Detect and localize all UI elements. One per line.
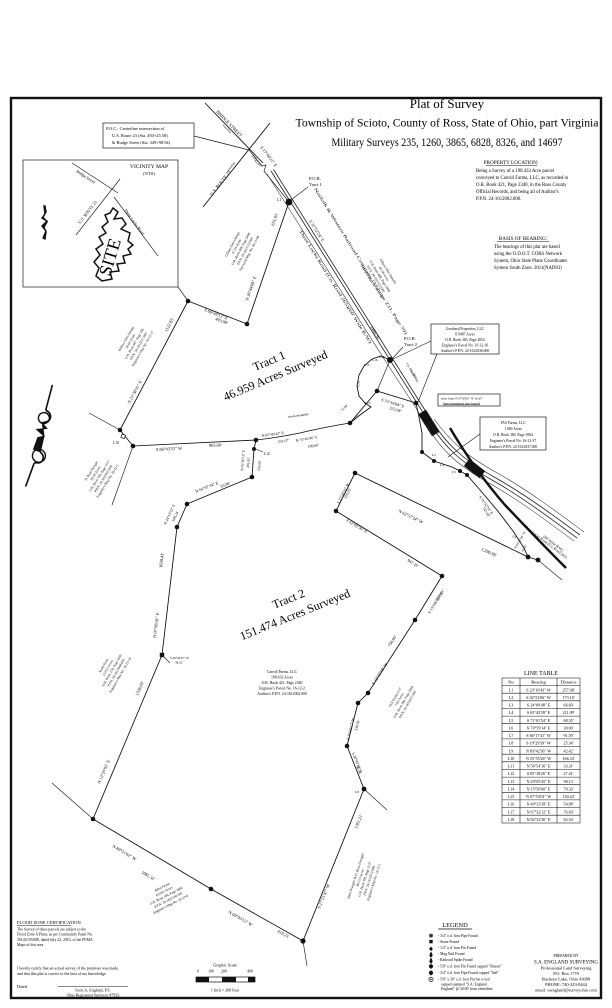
svg-text:Plat of Survey: Plat of Survey bbox=[410, 96, 485, 111]
svg-text:L10: L10 bbox=[508, 756, 515, 761]
svg-text:L16: L16 bbox=[372, 358, 378, 362]
svg-text:27.41': 27.41' bbox=[564, 771, 574, 776]
svg-text:P.P.N. 24-1612002.000.: P.P.N. 24-1612002.000. bbox=[476, 197, 521, 202]
svg-text:Township of Scioto, County of: Township of Scioto, County of Ross, Stat… bbox=[296, 116, 600, 130]
svg-text:S 02°52'06" W: S 02°52'06" W bbox=[526, 695, 551, 700]
svg-text:S 66°17'41" W: S 66°17'41" W bbox=[526, 733, 551, 738]
svg-text:38.22': 38.22' bbox=[175, 661, 183, 665]
svg-text:and that this plat is correct: and that this plat is correct to the bes… bbox=[17, 971, 106, 976]
svg-text:email: ssengland@surveyohio.co: email: ssengland@surveyohio.com bbox=[535, 988, 597, 993]
svg-text:L10: L10 bbox=[113, 441, 119, 445]
svg-text:L16: L16 bbox=[508, 802, 515, 807]
svg-text:PREPARED BY: PREPARED BY bbox=[553, 954, 579, 958]
svg-text:54.98': 54.98' bbox=[564, 802, 574, 807]
svg-text:L13: L13 bbox=[508, 779, 515, 784]
svg-text:68.35': 68.35' bbox=[564, 718, 574, 723]
svg-text:England" @ 30.00' from centerl: England" @ 30.00' from centerline bbox=[441, 987, 493, 991]
svg-text:VICINITY MAP: VICINITY MAP bbox=[130, 164, 168, 170]
svg-text:L18: L18 bbox=[379, 355, 385, 359]
svg-text:91.59': 91.59' bbox=[564, 733, 574, 738]
svg-text:200: 200 bbox=[221, 970, 227, 974]
svg-text:Distance: Distance bbox=[560, 680, 576, 685]
svg-text:79.33': 79.33' bbox=[564, 787, 574, 792]
svg-text:L9: L9 bbox=[509, 748, 514, 753]
svg-text:BASIS OF BEARING:: BASIS OF BEARING: bbox=[499, 236, 548, 242]
svg-text:N 67°32'12" E: N 67°32'12" E bbox=[527, 809, 551, 814]
svg-text:198.433 Acres: 198.433 Acres bbox=[271, 676, 293, 680]
svg-text:L4: L4 bbox=[440, 463, 444, 467]
svg-text:N 56°54'16" E: N 56°54'16" E bbox=[527, 764, 551, 769]
svg-text:66.60': 66.60' bbox=[564, 703, 574, 708]
svg-text:N 83°42'36" W: N 83°42'36" W bbox=[526, 748, 551, 753]
svg-text:0: 0 bbox=[197, 970, 199, 974]
svg-text:L17: L17 bbox=[508, 809, 515, 814]
svg-text:- 1/2" o.d. Iron Pin Found: - 1/2" o.d. Iron Pin Found bbox=[438, 946, 476, 950]
svg-text:S 85°18'26" E: S 85°18'26" E bbox=[527, 771, 551, 776]
svg-text:1 Inch = 200 Feet: 1 Inch = 200 Feet bbox=[211, 988, 240, 993]
svg-text:PHONE: 740-323-0444: PHONE: 740-323-0444 bbox=[545, 982, 588, 987]
svg-text:Bearing: Bearing bbox=[531, 680, 546, 685]
svg-text:S 71°01'54" E: S 71°01'54" E bbox=[527, 718, 551, 723]
svg-text:130.43': 130.43' bbox=[563, 794, 575, 799]
svg-text:257.08': 257.08' bbox=[563, 687, 575, 692]
svg-text:Engineer's Parcel No. 16-12-36: Engineer's Parcel No. 16-12-36 bbox=[442, 344, 488, 348]
svg-text:L1: L1 bbox=[277, 197, 281, 202]
svg-text:P.O. Box 1770: P.O. Box 1770 bbox=[553, 971, 579, 976]
svg-text:L18: L18 bbox=[508, 817, 515, 822]
svg-text:N 70°59'14" E: N 70°59'14" E bbox=[527, 726, 551, 731]
svg-text:Official Records, and being al: Official Records, and being all of Audit… bbox=[476, 190, 559, 195]
svg-text:30.00': 30.00' bbox=[564, 726, 574, 731]
svg-text:L8: L8 bbox=[355, 790, 359, 794]
svg-text:L14: L14 bbox=[508, 787, 515, 792]
svg-text:capped stamped "S.A. England: capped stamped "S.A. England bbox=[441, 982, 487, 986]
svg-text:- 5/8" x 30" o.d. Iron Pin Set: - 5/8" x 30" o.d. Iron Pin Set w/red bbox=[438, 978, 490, 982]
svg-text:N 29°05'45" E: N 29°05'45" E bbox=[527, 779, 551, 784]
svg-text:& Budge Street (Sta. 349+98.94: & Budge Street (Sta. 349+98.94) bbox=[112, 140, 171, 145]
svg-text:166.33': 166.33' bbox=[563, 756, 575, 761]
svg-text:LINE TABLE: LINE TABLE bbox=[524, 671, 558, 677]
svg-text:N 82°52'36" E: N 82°52'36" E bbox=[527, 817, 551, 822]
svg-text:Ohio Registered Surveyor #7933: Ohio Registered Surveyor #7933 bbox=[67, 993, 120, 998]
svg-text:- 3/4" o.d. Iron Pipe Found: - 3/4" o.d. Iron Pipe Found bbox=[438, 934, 478, 938]
svg-text:System South Zone. 2011(NAD8: System South Zone. 2011(NAD83) bbox=[494, 266, 562, 271]
svg-text:Tract 1: Tract 1 bbox=[309, 182, 323, 187]
svg-text:L1: L1 bbox=[509, 687, 514, 692]
svg-text:Engineer's Parcel No. 16-12-37: Engineer's Parcel No. 16-12-37 bbox=[490, 439, 536, 443]
svg-text:Tract 2: Tract 2 bbox=[404, 342, 418, 347]
svg-text:- 5/8" o.d. Iron Pin Found cap: - 5/8" o.d. Iron Pin Found capped "Sluss… bbox=[438, 964, 503, 968]
svg-text:100: 100 bbox=[208, 970, 214, 974]
svg-text:N 49°33'39" E: N 49°33'39" E bbox=[527, 802, 551, 807]
svg-text:L7: L7 bbox=[509, 733, 514, 738]
svg-text:L11: L11 bbox=[508, 764, 514, 769]
svg-text:N 55°55'26" W: N 55°55'26" W bbox=[526, 756, 551, 761]
svg-text:173.10': 173.10' bbox=[563, 695, 575, 700]
svg-text:L12: L12 bbox=[508, 771, 515, 776]
svg-text:System, Ohio State Plane Coord: System, Ohio State Plane Coordinates bbox=[494, 259, 567, 264]
svg-text:N 15°50'00" E: N 15°50'00" E bbox=[527, 787, 551, 792]
svg-text:33.31': 33.31' bbox=[564, 764, 574, 769]
svg-text:62.54': 62.54' bbox=[564, 817, 574, 822]
svg-text:1.069 Acres: 1.069 Acres bbox=[504, 427, 522, 431]
svg-text:- Mag Nail Found: - Mag Nail Found bbox=[438, 952, 465, 956]
svg-text:L3: L3 bbox=[509, 703, 514, 708]
svg-text:903.60': 903.60' bbox=[209, 442, 222, 448]
svg-text:P.O.B.: P.O.B. bbox=[404, 336, 416, 341]
svg-text:Professional Land Surveying: Professional Land Surveying bbox=[541, 966, 593, 971]
svg-text:Being a Survey of a 198.433 Ac: Being a Survey of a 198.433 Acre parcel bbox=[476, 169, 555, 174]
svg-text:U.S. Route 23 (Sta. 494+25.58): U.S. Route 23 (Sta. 494+25.58) bbox=[112, 133, 168, 138]
svg-text:Engineer's Parcel No. 16-12-2: Engineer's Parcel No. 16-12-2 bbox=[259, 687, 305, 691]
svg-text:42.42': 42.42' bbox=[564, 748, 574, 753]
svg-text:98.13': 98.13' bbox=[564, 779, 574, 784]
svg-text:P.O.B.: P.O.B. bbox=[309, 176, 321, 181]
svg-text:No: No bbox=[508, 680, 514, 685]
svg-text:L2: L2 bbox=[432, 453, 436, 457]
svg-text:25.34': 25.34' bbox=[564, 741, 574, 746]
svg-text:The bearings of this plat are: The bearings of this plat are based bbox=[494, 245, 560, 250]
svg-text:using the O.D.O.T. CORS Networ: using the O.D.O.T. CORS Network bbox=[494, 252, 563, 257]
svg-text:S 24°09'48" E: S 24°09'48" E bbox=[527, 703, 551, 708]
svg-text:L5: L5 bbox=[509, 718, 514, 723]
svg-text:S 23°10'43" W: S 23°10'43" W bbox=[526, 687, 551, 692]
svg-text:Auditor's P.P.N. 24-1612036.00: Auditor's P.P.N. 24-1612036.000 bbox=[441, 349, 490, 353]
svg-text:L15: L15 bbox=[364, 363, 370, 367]
svg-text:PROPERTY LOCATION:: PROPERTY LOCATION: bbox=[484, 160, 539, 166]
svg-text:L15: L15 bbox=[508, 794, 515, 799]
svg-text:Auditor's P.P.N. 24-1612037.00: Auditor's P.P.N. 24-1612037.000 bbox=[489, 445, 538, 449]
svg-text:L4: L4 bbox=[509, 710, 514, 715]
svg-text:O.R. Book 421, Page 2340, in t: O.R. Book 421, Page 2340, in the Ross Co… bbox=[476, 183, 567, 188]
svg-text:Military Surveys 235, 1260, 38: Military Surveys 235, 1260, 3865, 6828, … bbox=[332, 135, 563, 149]
svg-text:S 06°42'07" W: S 06°42'07" W bbox=[170, 656, 189, 660]
svg-text:FLOOD ZONE CERTIFICATION: FLOOD ZONE CERTIFICATION bbox=[17, 920, 81, 925]
svg-text:conveyed to Carroll Farms, LLC: conveyed to Carroll Farms, LLC, as recor… bbox=[476, 176, 569, 181]
svg-text:Dated: Dated bbox=[17, 984, 28, 989]
svg-text:- Stone Found: - Stone Found bbox=[438, 940, 459, 944]
svg-text:P.O.C.: Centerline intersectio: P.O.C.: Centerline intersection of bbox=[106, 126, 165, 131]
svg-text:prior lines N 2°50'02" W 16.: prior lines N 2°50'02" W 16.67' bbox=[441, 397, 483, 401]
svg-text:400: 400 bbox=[247, 970, 253, 974]
svg-text:211.99': 211.99' bbox=[563, 710, 575, 715]
svg-text:- Railroad Spike Found: - Railroad Spike Found bbox=[438, 958, 473, 962]
svg-text:L8: L8 bbox=[509, 741, 514, 746]
svg-text:Maps of this area: Maps of this area bbox=[17, 943, 44, 947]
svg-text:76.60': 76.60' bbox=[564, 809, 574, 814]
svg-text:L6: L6 bbox=[509, 726, 514, 731]
svg-text:Auditor's P.P.N. 24-1612002.00: Auditor's P.P.N. 24-1612002.000 bbox=[257, 692, 307, 696]
svg-text:(NTS): (NTS) bbox=[143, 171, 155, 176]
svg-text:L12: L12 bbox=[264, 452, 270, 456]
svg-text:0.9487 Acres: 0.9487 Acres bbox=[455, 333, 475, 337]
svg-text:L5: L5 bbox=[452, 470, 456, 474]
svg-text:LEGEND: LEGEND bbox=[442, 922, 468, 929]
svg-text:N 07°53'01" W: N 07°53'01" W bbox=[526, 794, 551, 799]
svg-text:- 3/4" o.d. Iron Pipe Found ca: - 3/4" o.d. Iron Pipe Found capped "Itte… bbox=[438, 971, 499, 975]
svg-text:S 19°29'39" W: S 19°29'39" W bbox=[526, 741, 551, 746]
svg-text:L2: L2 bbox=[509, 695, 514, 700]
svg-text:S 65°43'39" E: S 65°43'39" E bbox=[527, 710, 551, 715]
svg-text:The Survey of these parcels ar: The Survey of these parcels are subject … bbox=[17, 928, 86, 932]
svg-text:Graphic Scale: Graphic Scale bbox=[213, 963, 237, 968]
